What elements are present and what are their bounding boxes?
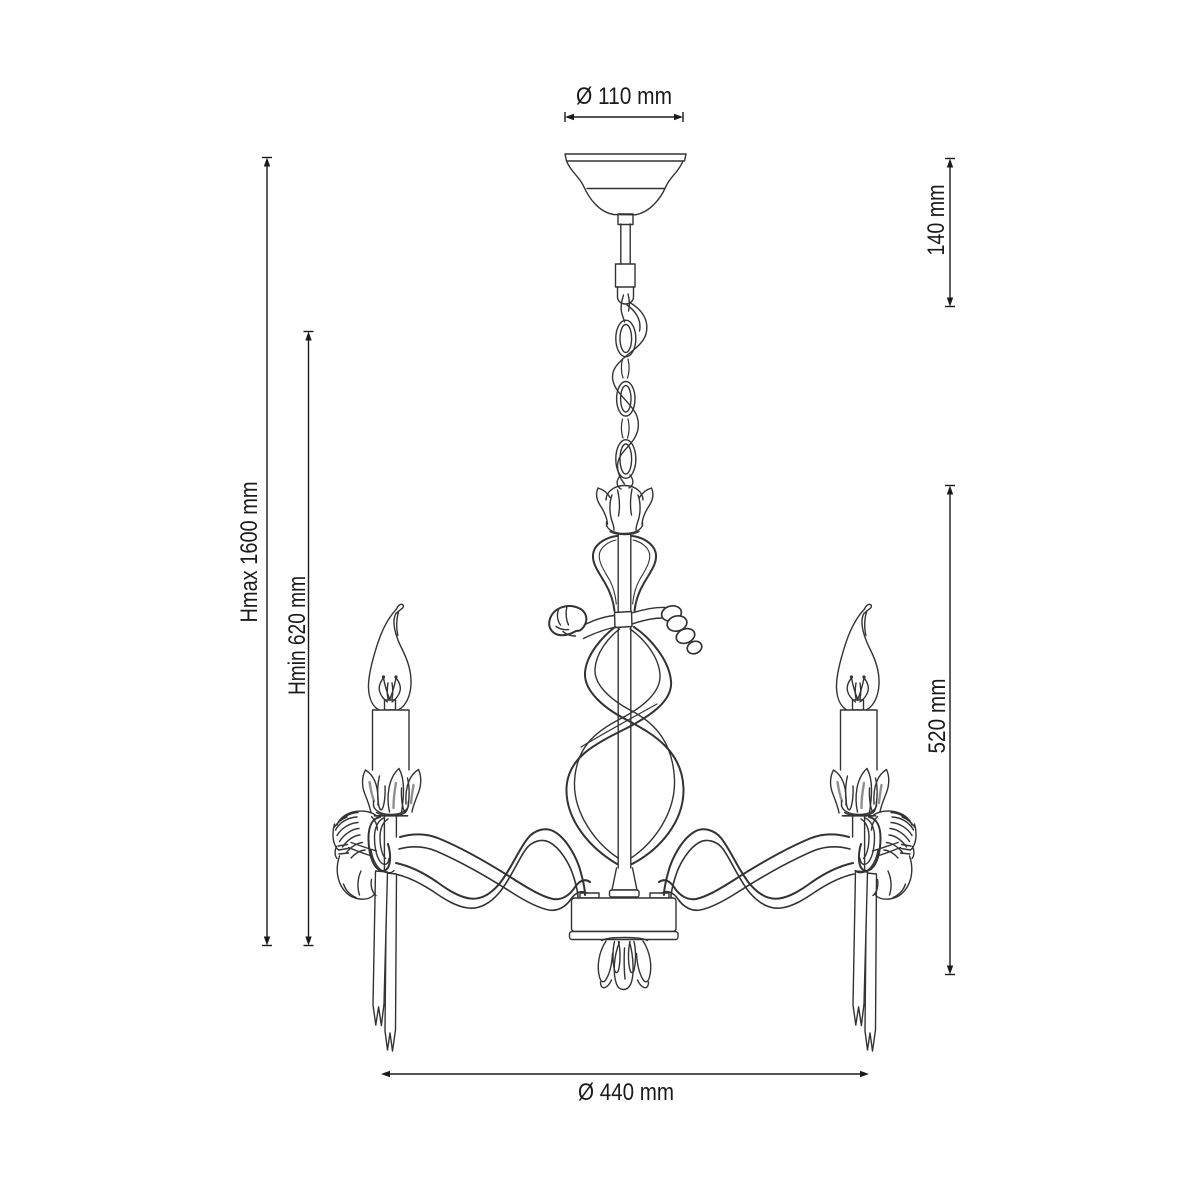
svg-text:140 mm: 140 mm <box>923 185 950 256</box>
svg-text:Ø 440 mm: Ø 440 mm <box>578 1079 674 1106</box>
svg-text:Ø 110 mm: Ø 110 mm <box>576 83 672 110</box>
svg-text:Hmax 1600 mm: Hmax 1600 mm <box>236 482 263 623</box>
svg-text:Hmin 620 mm: Hmin 620 mm <box>284 576 311 695</box>
svg-text:520 mm: 520 mm <box>924 679 951 754</box>
